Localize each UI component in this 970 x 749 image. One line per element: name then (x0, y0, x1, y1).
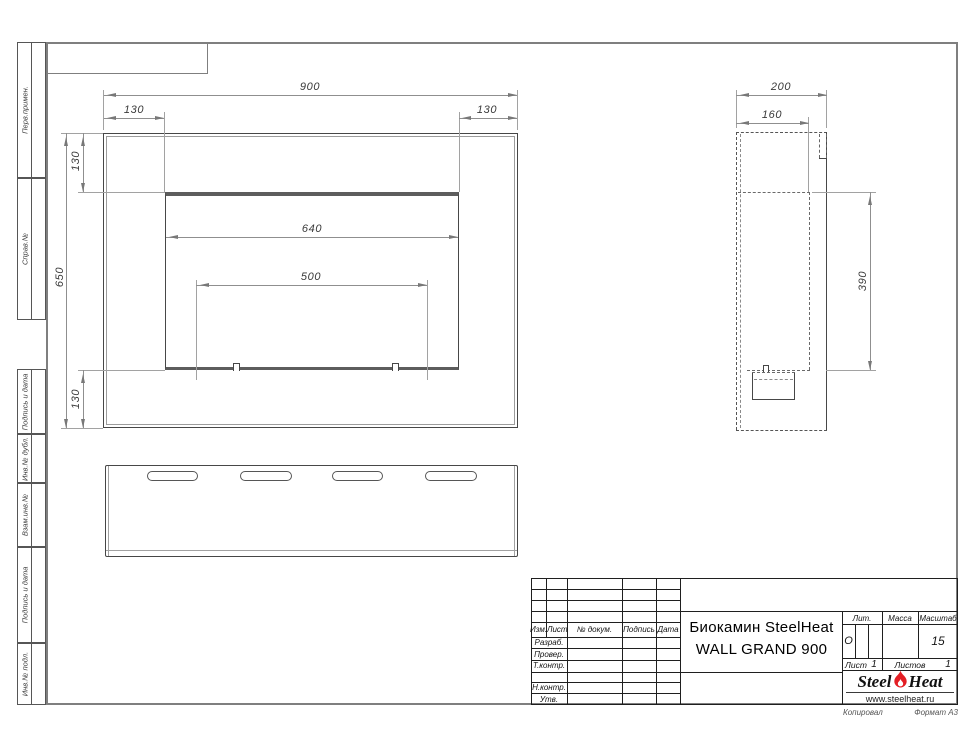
tb-line (656, 578, 657, 705)
side-burner-inner-line (754, 379, 793, 380)
margin-stamp-vzam-inv: Взам.инв.№ (17, 483, 46, 547)
margin-stamp-inv-dubl: Инв.№ дубл. (17, 434, 46, 483)
tb-row-ncontrol: Н.контр. (531, 683, 567, 692)
side-bottom-edge (736, 430, 827, 431)
stamp-label: Инв.№ дубл. (21, 436, 30, 480)
side-wall-bracket (819, 134, 827, 158)
stamp-divider (31, 179, 32, 319)
logo-url: www.steelheat.ru (842, 694, 958, 704)
dim-text-130-top: 130 (70, 141, 82, 181)
vent-slot-4 (425, 471, 477, 481)
tb-col-list: Лист (547, 625, 567, 634)
ext-line (78, 370, 165, 371)
document-title-line2: WALL GRAND 900 (681, 639, 842, 661)
dim-line-640 (166, 237, 458, 238)
dim-arrow (449, 235, 461, 239)
side-hidden-front-panel (740, 134, 741, 428)
side-top-edge (736, 132, 827, 133)
dim-line-650 (66, 133, 67, 428)
side-burner-box-top (752, 372, 795, 373)
dim-text-500: 500 (291, 271, 331, 283)
ext-line (427, 280, 428, 380)
tb-row-tcontrol: Т.контр. (531, 661, 567, 670)
dim-arrow (155, 116, 167, 120)
stamp-label: Инв.№ подл. (21, 652, 30, 696)
tb-line (531, 622, 681, 623)
ext-line (459, 112, 460, 192)
side-hidden-opening-bottom (747, 370, 810, 371)
ext-line (164, 112, 165, 192)
stamp-label: Взам.инв.№ (21, 494, 30, 536)
margin-stamp-sprav: Справ.№ (17, 178, 46, 320)
tb-line (680, 672, 842, 673)
document-title-line1: Биокамин SteelHeat (681, 617, 842, 639)
logo-heat: Heat (909, 672, 943, 692)
tb-row-approved: Утв. (531, 695, 567, 704)
stamp-label: Перв.примен. (21, 86, 30, 134)
side-left-edge (736, 132, 737, 430)
vent-slot-1 (147, 471, 198, 481)
vent-slot-2 (240, 471, 292, 481)
side-hidden-opening-top (738, 192, 810, 193)
tb-lit-label: Лит. (842, 614, 882, 623)
margin-stamp-podpis-2: Подпись и дата (17, 547, 46, 643)
ext-line (812, 192, 876, 193)
top-left-stamp-box (46, 42, 208, 74)
side-burner-clip (763, 365, 769, 372)
dim-arrow (197, 283, 209, 287)
tb-sheets-label: Листов (890, 660, 930, 670)
dim-text-900: 900 (290, 81, 330, 93)
tb-col-date: Дата (656, 625, 680, 634)
logo-underline (846, 692, 954, 693)
tb-line (842, 624, 958, 625)
dim-arrow (64, 419, 68, 431)
tb-row-checked: Провер. (531, 650, 567, 659)
dim-text-160: 160 (752, 109, 792, 121)
footer-copied-label: Копировал (843, 708, 883, 717)
ext-line (196, 280, 197, 380)
tb-line (567, 578, 568, 705)
steelheat-logo: Steel Heat (842, 671, 958, 693)
vent-slot-3 (332, 471, 383, 481)
stamp-divider (31, 370, 32, 433)
bottom-panel-inner-left (108, 466, 109, 556)
dim-text-130-right: 130 (467, 104, 507, 116)
margin-stamp-inv-podl: Инв.№ подл. (17, 643, 46, 705)
tb-mass-label: Масса (882, 614, 918, 623)
stamp-divider (31, 43, 32, 177)
burner-clip-left (233, 363, 240, 371)
dim-line-500 (196, 285, 427, 286)
document-title: Биокамин SteelHeat WALL GRAND 900 (681, 617, 842, 661)
tb-sheet-label: Лист (844, 660, 868, 670)
stamp-divider (31, 435, 32, 482)
dim-arrow (459, 116, 471, 120)
bottom-panel-fold-line (106, 550, 517, 551)
side-burner-box (752, 372, 795, 400)
dim-text-390: 390 (857, 261, 869, 301)
dim-line-390 (870, 192, 871, 370)
stamp-divider (31, 548, 32, 642)
dim-text-200: 200 (761, 81, 801, 93)
ext-line (808, 117, 809, 192)
dim-arrow (418, 283, 430, 287)
dim-arrow (508, 116, 520, 120)
dim-arrow (508, 93, 520, 97)
stamp-label: Подпись и дата (21, 567, 30, 624)
dim-arrow (104, 116, 116, 120)
tb-scale-value: 15 (918, 634, 958, 648)
dim-arrow (166, 235, 178, 239)
side-wall-bracket-bottom (819, 158, 827, 159)
dim-arrow (104, 93, 116, 97)
dim-arrow (737, 121, 749, 125)
tb-line (531, 589, 681, 590)
tb-row-developed: Разраб. (531, 638, 567, 647)
tb-sheet-value: 1 (866, 659, 882, 670)
footer-format-label: Формат А3 (890, 708, 958, 717)
stamp-label: Подпись и дата (21, 373, 30, 430)
margin-stamp-podpis-1: Подпись и дата (17, 369, 46, 434)
tb-line (868, 624, 869, 658)
tb-sheets-value: 1 (940, 659, 956, 670)
dim-arrow (81, 183, 85, 195)
dim-arrow (868, 193, 872, 205)
tb-col-izm: Изм. (529, 625, 548, 634)
dim-arrow (81, 419, 85, 431)
margin-stamp-perv-primen: Перв.примен. (17, 42, 46, 178)
stamp-label: Справ.№ (21, 233, 30, 265)
dim-arrow (818, 93, 830, 97)
side-right-edge (826, 132, 827, 430)
dim-arrow (868, 361, 872, 373)
logo-steel: Steel (858, 672, 892, 692)
tb-line (622, 578, 623, 705)
dim-arrow (64, 134, 68, 146)
tb-line (531, 600, 681, 601)
dim-line-900 (104, 95, 517, 96)
dim-line-200 (736, 95, 827, 96)
stamp-divider (31, 644, 32, 704)
tb-line (531, 611, 681, 612)
dim-text-640: 640 (292, 223, 332, 235)
tb-scale-label: Масштаб (918, 614, 958, 623)
dim-text-650: 650 (54, 257, 66, 297)
bottom-panel-inner-right (514, 466, 515, 556)
tb-col-sign: Подпись (622, 625, 656, 634)
flame-icon (892, 670, 909, 694)
stamp-divider (31, 484, 32, 546)
dim-arrow (737, 93, 749, 97)
tb-line (855, 624, 856, 658)
side-hidden-firebox-back (809, 192, 810, 370)
dim-arrow (800, 121, 812, 125)
tb-col-doc: № докум. (567, 625, 622, 634)
tb-line (680, 611, 958, 612)
ext-line (78, 192, 165, 193)
burner-clip-right (392, 363, 399, 371)
drawing-sheet: Перв.примен. Справ.№ Подпись и дата Инв.… (0, 0, 970, 749)
tb-lit-value: О (842, 635, 855, 647)
dim-text-130-bottom: 130 (70, 379, 82, 419)
dim-text-130-left: 130 (114, 104, 154, 116)
tb-line (531, 672, 681, 673)
